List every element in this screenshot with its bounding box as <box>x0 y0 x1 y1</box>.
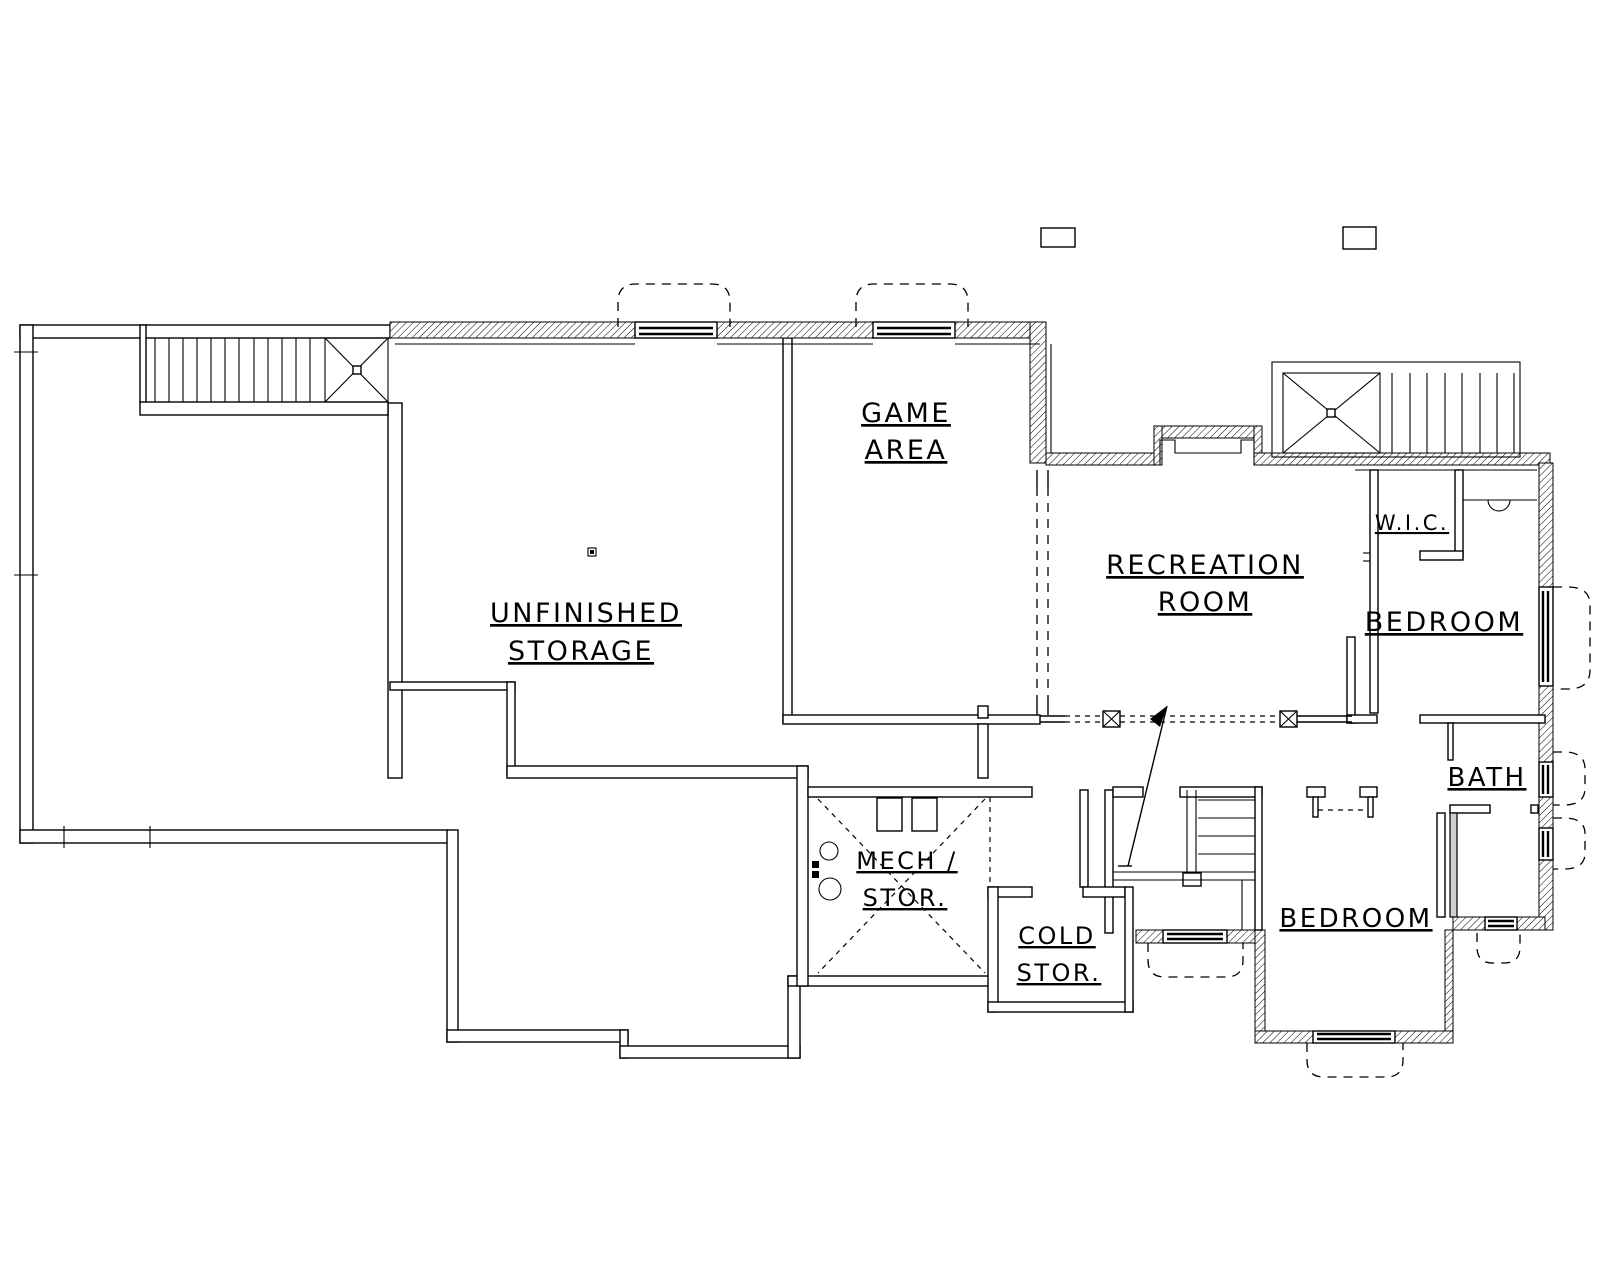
interior-face-lines <box>395 344 1537 470</box>
room-label-mech-stor-1: MECH / <box>856 847 957 875</box>
foundation-walls <box>20 325 1133 1058</box>
beam-line-with-columns <box>1040 711 1352 727</box>
room-label-wic: W.I.C. <box>1375 511 1449 535</box>
interior-walls <box>1113 470 1545 930</box>
window-top-2 <box>873 322 955 338</box>
window-bedroom-upper <box>1539 587 1553 686</box>
stairs-central <box>1113 706 1255 930</box>
room-label-unfinished-storage-2: STORAGE <box>508 636 654 667</box>
room-label-bedroom-upper: BEDROOM <box>1365 607 1523 638</box>
deck-post-footings <box>1041 227 1376 249</box>
room-label-recreation-room-2: ROOM <box>1158 587 1253 618</box>
storage-column-marker <box>588 548 596 556</box>
window-bay <box>1313 1031 1395 1043</box>
furred-plumbing-wall <box>1450 813 1457 917</box>
floor-drain <box>812 871 819 878</box>
window-bath-south <box>1485 917 1517 930</box>
furnace <box>912 798 937 831</box>
window-stair-south <box>1163 930 1227 943</box>
window-bath-2 <box>1539 828 1553 860</box>
room-label-bedroom-lower: BEDROOM <box>1279 904 1432 934</box>
room-label-cold-stor-1: COLD <box>1018 922 1096 950</box>
window-wells <box>618 284 1590 1077</box>
room-label-game-area-1: GAME <box>861 398 951 429</box>
cased-opening-game-rec <box>1037 470 1048 715</box>
basement-floor-plan: UNFINISHED STORAGE GAME AREA RECREATION … <box>0 0 1600 1280</box>
room-label-recreation-room-1: RECREATION <box>1106 550 1304 581</box>
wall-joint-ticks <box>14 352 150 848</box>
room-label-unfinished-storage-1: UNFINISHED <box>490 598 682 629</box>
room-label-bath: BATH <box>1447 763 1526 793</box>
floor-plan-page: UNFINISHED STORAGE GAME AREA RECREATION … <box>0 0 1600 1280</box>
furnace <box>877 798 902 831</box>
water-heater <box>819 878 841 900</box>
room-label-game-area-2: AREA <box>865 435 948 466</box>
room-label-mech-stor-2: STOR. <box>863 884 948 912</box>
floor-drain <box>812 861 819 868</box>
stairs-top-left <box>140 325 388 415</box>
stair-direction-arrow <box>1128 706 1167 866</box>
room-label-cold-stor-2: STOR. <box>1017 959 1102 987</box>
closet-rod-arc <box>1488 500 1510 511</box>
window-bath-1 <box>1539 762 1553 797</box>
stairs-top-right <box>1272 362 1520 457</box>
water-heater <box>820 842 838 860</box>
window-top-1 <box>635 322 717 338</box>
